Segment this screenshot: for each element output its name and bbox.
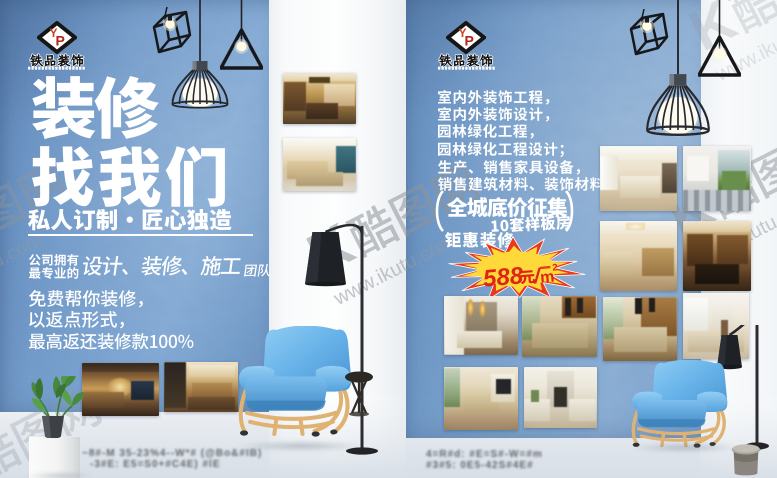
svg-text:2: 2 <box>552 262 558 273</box>
svg-text:P: P <box>55 32 64 48</box>
svg-text:588: 588 <box>482 262 525 292</box>
svg-text:P: P <box>465 32 474 48</box>
